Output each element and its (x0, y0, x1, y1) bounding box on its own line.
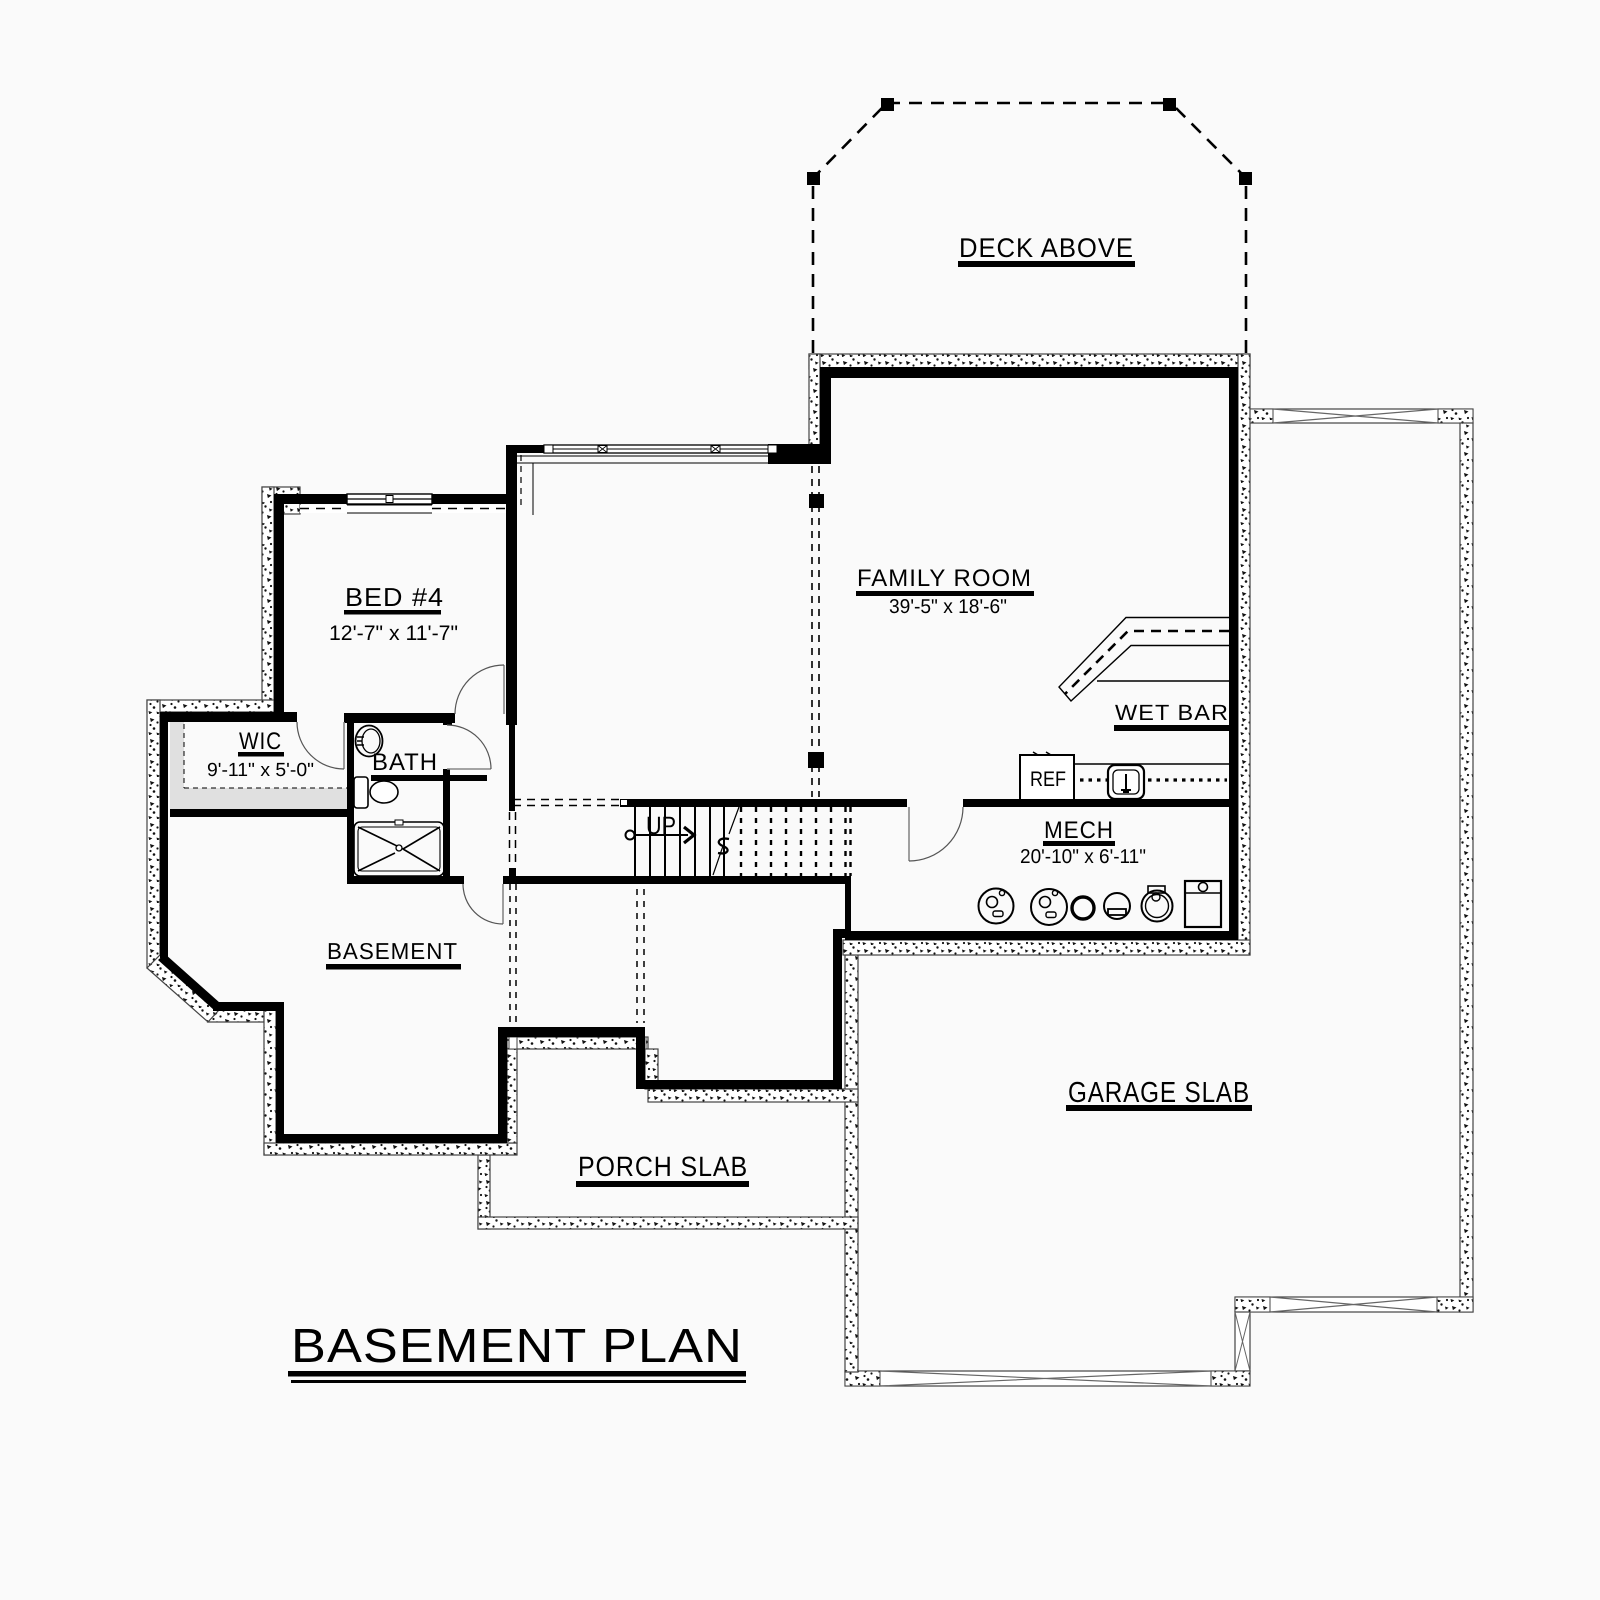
svg-text:12'-7" x 11'-7": 12'-7" x 11'-7" (329, 622, 458, 645)
svg-text:PORCH SLAB: PORCH SLAB (578, 1151, 748, 1182)
svg-text:9'-11" x 5'-0": 9'-11" x 5'-0" (207, 760, 314, 781)
svg-text:REF: REF (1030, 768, 1066, 791)
svg-text:BASEMENT PLAN: BASEMENT PLAN (291, 1320, 743, 1373)
svg-text:BASEMENT: BASEMENT (327, 938, 458, 964)
svg-text:MECH: MECH (1044, 817, 1114, 844)
svg-text:UP: UP (646, 812, 676, 840)
svg-text:39'-5" x 18'-6": 39'-5" x 18'-6" (889, 596, 1007, 618)
svg-text:FAMILY ROOM: FAMILY ROOM (857, 565, 1032, 592)
svg-text:BATH: BATH (372, 749, 438, 776)
svg-text:WET BAR: WET BAR (1115, 700, 1229, 725)
svg-text:BED #4: BED #4 (345, 582, 444, 612)
svg-text:GARAGE SLAB: GARAGE SLAB (1068, 1077, 1250, 1109)
svg-text:WIC: WIC (239, 728, 282, 755)
svg-text:DECK ABOVE: DECK ABOVE (959, 233, 1134, 263)
svg-text:20'-10" x 6'-11": 20'-10" x 6'-11" (1020, 846, 1146, 868)
